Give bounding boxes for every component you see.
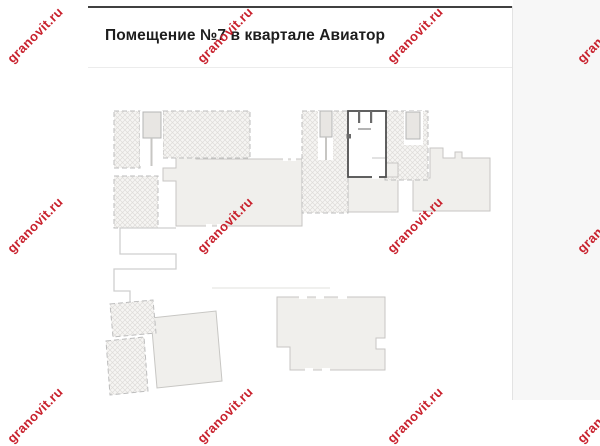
plate-center [163,148,302,226]
card-right-border [512,6,513,400]
building-bottom-left [151,311,222,388]
floor-plan [0,0,600,400]
unit-7-wall-stub [370,111,372,123]
building-bottom-left-hatched-lower [106,337,148,395]
building-bottom-center [277,297,385,370]
unit-7-door-gap [372,175,379,179]
unit-7-wall-stub [358,111,360,123]
unit-7-side-step [386,163,398,177]
unit-7-outline[interactable] [348,111,386,177]
building-top-left-hatched [114,111,140,168]
unit-7-area-label-mark [358,128,371,130]
page: { "header": { "title": "Помещение №7 в к… [0,0,600,400]
unit-7-wall-nub [347,134,352,139]
building-top-hatched [163,111,250,158]
building-left-hatched [114,176,158,228]
building-bottom-left-hatched-upper [110,300,156,337]
site-boundary-zigzag [114,228,176,306]
elevator-core [143,112,161,138]
elevator-core [320,111,332,137]
elevator-core [406,112,420,139]
